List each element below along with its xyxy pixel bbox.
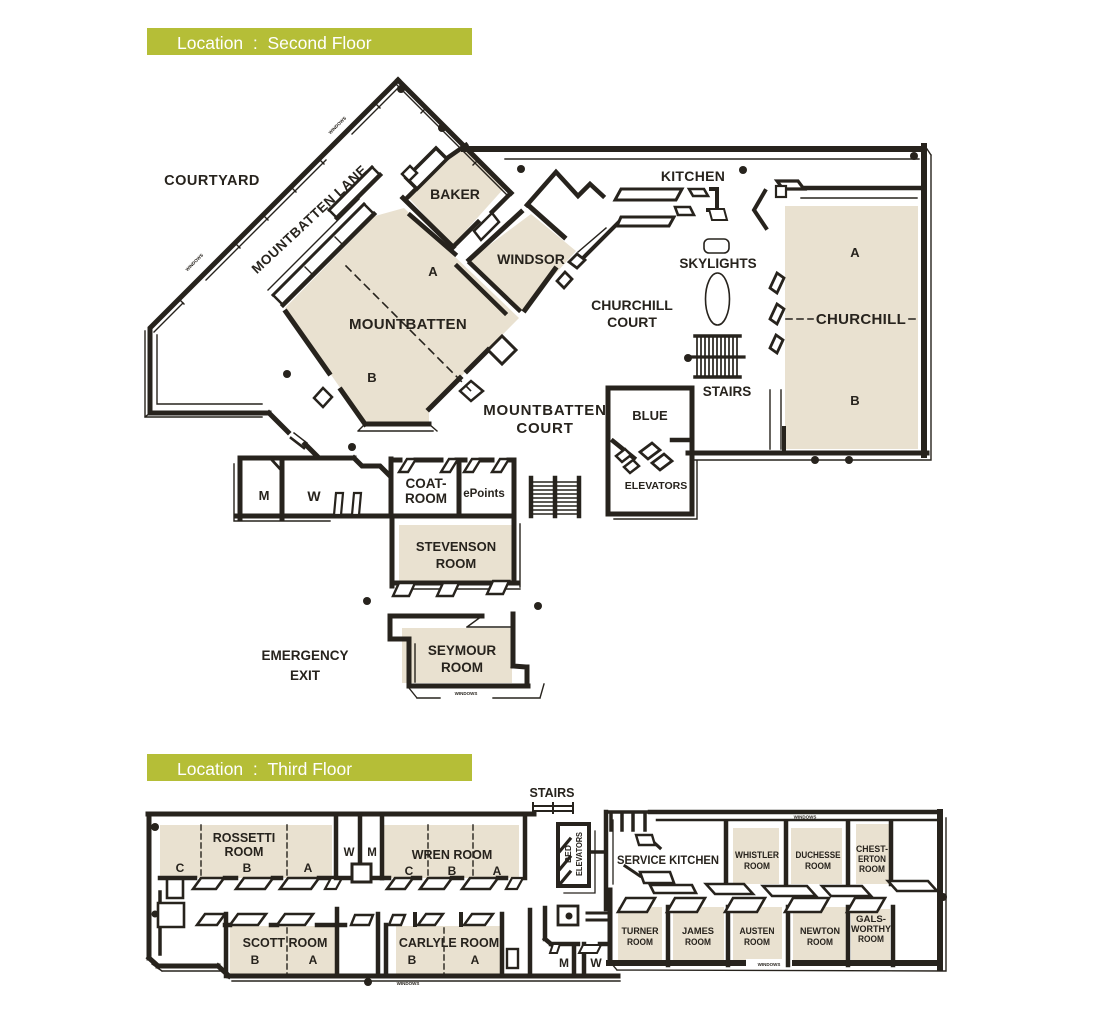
- svg-text:ROOM: ROOM: [805, 861, 831, 872]
- svg-text:W: W: [307, 488, 321, 504]
- svg-text:STAIRS: STAIRS: [530, 786, 575, 800]
- svg-text:ROOM: ROOM: [441, 660, 483, 675]
- svg-text:A: A: [850, 245, 860, 260]
- svg-text:B: B: [850, 393, 859, 408]
- svg-text:DUCHESSE: DUCHESSE: [796, 850, 841, 861]
- svg-text:C: C: [176, 861, 185, 875]
- svg-text:CHURCHILL: CHURCHILL: [591, 297, 673, 313]
- svg-text:BLUE: BLUE: [632, 408, 668, 423]
- svg-text:MOUNTBATTEN: MOUNTBATTEN: [483, 402, 607, 419]
- svg-text:WHISTLER: WHISTLER: [735, 850, 779, 861]
- svg-text:B: B: [251, 953, 260, 967]
- svg-text:WINDOWS: WINDOWS: [758, 962, 781, 967]
- svg-text:ROOM: ROOM: [807, 937, 833, 948]
- svg-text:JAMES: JAMES: [682, 926, 714, 937]
- svg-text:C: C: [405, 864, 414, 878]
- svg-text:ROOM: ROOM: [627, 937, 653, 948]
- svg-text:SCOTT ROOM: SCOTT ROOM: [243, 936, 328, 950]
- svg-text:STEVENSON: STEVENSON: [416, 539, 496, 554]
- svg-text:A: A: [471, 953, 480, 967]
- svg-text:M: M: [559, 956, 569, 970]
- svg-text:M: M: [367, 847, 377, 859]
- svg-text:COURT: COURT: [516, 420, 573, 437]
- svg-text:EMERGENCY: EMERGENCY: [261, 648, 348, 663]
- svg-text:CHURCHILL: CHURCHILL: [816, 311, 906, 328]
- svg-text:ePoints: ePoints: [463, 488, 505, 500]
- svg-text:ROOM: ROOM: [225, 845, 264, 859]
- svg-text:ELEVATORS: ELEVATORS: [625, 480, 687, 492]
- svg-text:WINDOWS: WINDOWS: [794, 815, 817, 820]
- svg-text:ROOM: ROOM: [859, 864, 885, 875]
- svg-text:SEYMOUR: SEYMOUR: [428, 643, 497, 658]
- svg-text:WINDSOR: WINDSOR: [497, 251, 565, 267]
- svg-text:A: A: [428, 264, 438, 279]
- svg-text:STAIRS: STAIRS: [703, 384, 752, 399]
- svg-text:B: B: [448, 864, 457, 878]
- svg-text:BED: BED: [563, 845, 573, 863]
- svg-text:COURT: COURT: [607, 314, 657, 330]
- svg-text:A: A: [493, 864, 502, 878]
- svg-text:ROOM: ROOM: [744, 937, 770, 948]
- svg-text:B: B: [367, 370, 376, 385]
- svg-text:ROOM: ROOM: [436, 556, 476, 571]
- svg-text:ROOM: ROOM: [685, 937, 711, 948]
- svg-text:B: B: [243, 861, 252, 875]
- svg-text:EXIT: EXIT: [290, 668, 321, 683]
- svg-text:KITCHEN: KITCHEN: [661, 168, 725, 184]
- svg-text:ROOM: ROOM: [744, 861, 770, 872]
- svg-text:Location : Third Floor: Location : Third Floor: [177, 759, 352, 779]
- svg-text:SERVICE KITCHEN: SERVICE KITCHEN: [617, 853, 719, 867]
- svg-text:Location : Second Floor: Location : Second Floor: [177, 33, 372, 53]
- svg-text:WINDOWS: WINDOWS: [455, 691, 478, 696]
- svg-text:AUSTEN: AUSTEN: [740, 926, 775, 937]
- svg-text:ROOM: ROOM: [858, 934, 884, 945]
- svg-text:BAKER: BAKER: [430, 186, 480, 202]
- svg-text:TURNER: TURNER: [622, 926, 659, 937]
- svg-text:WINDOWS: WINDOWS: [397, 981, 420, 986]
- svg-text:CARLYLE ROOM: CARLYLE ROOM: [399, 936, 499, 950]
- svg-text:ROOM: ROOM: [405, 491, 447, 506]
- svg-text:B: B: [408, 953, 417, 967]
- svg-text:NEWTON: NEWTON: [800, 926, 840, 937]
- svg-text:ROSSETTI: ROSSETTI: [213, 831, 276, 845]
- svg-text:SKYLIGHTS: SKYLIGHTS: [679, 256, 756, 271]
- svg-text:M: M: [259, 488, 270, 503]
- svg-text:ELEVATORS: ELEVATORS: [574, 832, 584, 876]
- svg-text:COAT-: COAT-: [406, 476, 447, 491]
- svg-text:W: W: [344, 847, 355, 859]
- svg-text:W: W: [590, 956, 602, 970]
- svg-text:A: A: [304, 861, 313, 875]
- svg-text:MOUNTBATTEN: MOUNTBATTEN: [349, 316, 467, 333]
- svg-text:A: A: [309, 953, 318, 967]
- svg-text:WREN ROOM: WREN ROOM: [412, 848, 493, 862]
- svg-text:COURTYARD: COURTYARD: [164, 173, 260, 189]
